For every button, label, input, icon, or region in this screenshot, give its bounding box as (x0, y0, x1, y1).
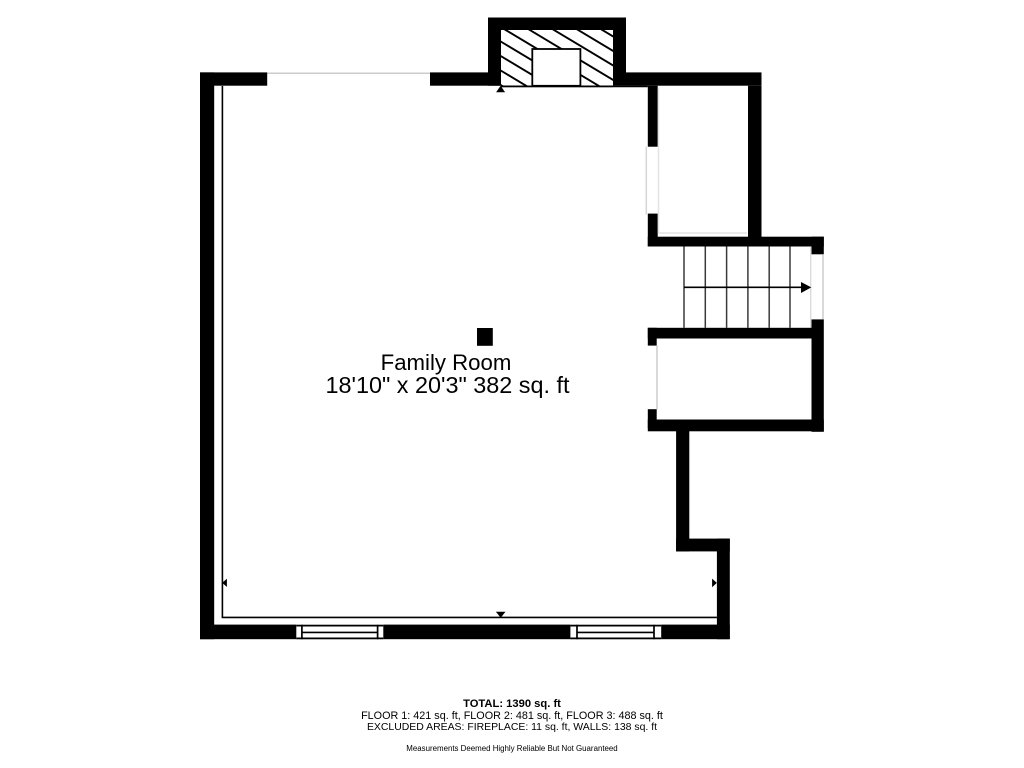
svg-text:18'10" x 20'3" 382 sq. ft: 18'10" x 20'3" 382 sq. ft (325, 372, 570, 398)
svg-text:FLOOR 1: 421 sq. ft, FLOOR 2:: FLOOR 1: 421 sq. ft, FLOOR 2: 481 sq. ft… (361, 710, 663, 722)
svg-text:Measurements Deemed Highly Rel: Measurements Deemed Highly Reliable But … (406, 744, 617, 753)
svg-text:TOTAL: 1390 sq. ft: TOTAL: 1390 sq. ft (463, 698, 561, 710)
svg-text:EXCLUDED AREAS: FIREPLACE: 11: EXCLUDED AREAS: FIREPLACE: 11 sq. ft, WA… (367, 722, 657, 733)
